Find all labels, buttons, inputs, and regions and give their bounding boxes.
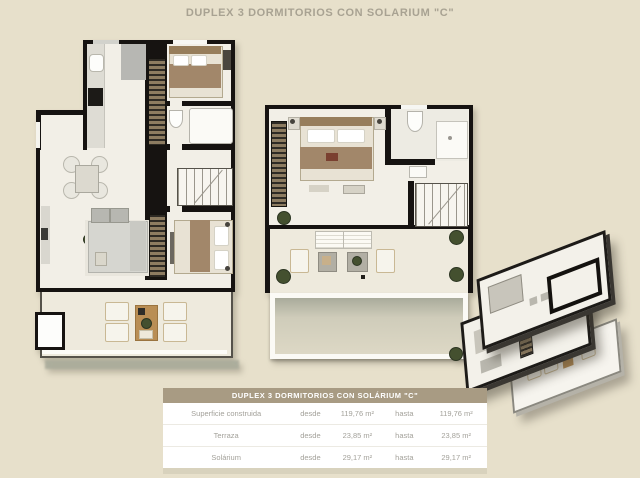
- floor-plan-lower-level: [33, 38, 235, 372]
- kitchen-cabinet: [121, 44, 146, 80]
- lamp-icon: [225, 222, 230, 227]
- pillow: [214, 226, 229, 246]
- table-shadow: [163, 468, 487, 474]
- sofa-cushion: [110, 208, 129, 223]
- isometric-stacked-view: [455, 242, 635, 402]
- lamp-icon: [225, 266, 230, 271]
- desde-label: desde: [289, 447, 331, 468]
- pillow: [337, 129, 365, 143]
- solarium-chair: [376, 249, 395, 273]
- plant-pot-icon: [141, 318, 152, 329]
- tv-icon: [41, 228, 48, 240]
- desde-label: desde: [289, 403, 331, 424]
- bench: [309, 185, 329, 192]
- coffee-table: [95, 252, 107, 266]
- wardrobe-icon: [271, 121, 287, 207]
- hasta-label: hasta: [383, 403, 425, 424]
- bed-blanket: [169, 64, 221, 88]
- sofa-chaise: [130, 221, 146, 271]
- plan-shadow: [45, 360, 239, 369]
- bed-blanket: [190, 220, 210, 272]
- terrace-chair: [163, 302, 187, 321]
- row-label: Terraza: [163, 425, 289, 446]
- plant-pot-icon: [277, 211, 291, 225]
- terrace-chair: [105, 302, 129, 321]
- window: [173, 40, 207, 44]
- iso-bed-block: [488, 274, 524, 314]
- sink-icon: [89, 54, 104, 72]
- sofa-cushion: [91, 208, 110, 223]
- iso-furniture: [480, 353, 502, 373]
- window: [401, 105, 427, 109]
- desk: [223, 50, 231, 70]
- hasta-label: hasta: [383, 447, 425, 468]
- hasta-label: hasta: [383, 425, 425, 446]
- desde-value: 29,17 m²: [331, 447, 383, 468]
- desde-value: 119,76 m²: [331, 403, 383, 424]
- door-opening: [170, 101, 182, 106]
- hasta-value: 23,85 m²: [425, 425, 487, 446]
- wardrobe-icon: [149, 214, 166, 278]
- iso-furniture: [529, 296, 537, 306]
- pillow: [173, 55, 189, 66]
- iso-solarium-frame: [547, 257, 603, 314]
- shower-icon: [436, 121, 468, 159]
- bed-headboard: [169, 46, 221, 54]
- sun-lounger: [315, 231, 344, 249]
- sun-lounger: [343, 231, 372, 249]
- pillow: [191, 55, 207, 66]
- interior-wall: [385, 159, 435, 165]
- hasta-value: 119,76 m²: [425, 403, 487, 424]
- table-item: [322, 256, 331, 265]
- table-item: [138, 308, 145, 315]
- toilet-icon: [169, 110, 183, 128]
- stairs-icon: [177, 168, 233, 206]
- table-body: Superficie construida desde 119,76 m² ha…: [163, 403, 487, 468]
- stairs-icon: [415, 183, 468, 227]
- terrace-chair: [163, 323, 187, 342]
- stove-icon: [88, 88, 103, 106]
- floor-plan-upper-level: [263, 103, 475, 365]
- table-row: Terraza desde 23,85 m² hasta 23,85 m²: [163, 425, 487, 447]
- lamp-icon: [290, 119, 295, 124]
- pillow: [307, 129, 335, 143]
- table-header: DUPLEX 3 DORMITORIOS CON SOLÁRIUM "C": [163, 388, 487, 403]
- terrace-railing: [270, 293, 468, 359]
- solarium-chair: [290, 249, 309, 273]
- table-row: Superficie construida desde 119,76 m² ha…: [163, 403, 487, 425]
- bathtub-icon: [189, 108, 233, 144]
- bench: [343, 185, 365, 194]
- dining-table-icon: [75, 165, 99, 193]
- window: [36, 122, 40, 148]
- bed-bench: [170, 232, 174, 264]
- bed-headboard: [300, 117, 372, 126]
- terrace-door: [35, 312, 65, 350]
- interior-wall: [385, 105, 391, 165]
- desde-value: 23,85 m²: [331, 425, 383, 446]
- lamp-icon: [377, 119, 382, 124]
- plant-pot-icon: [276, 269, 291, 284]
- door-opening: [170, 206, 182, 212]
- wardrobe-icon: [148, 58, 166, 146]
- stair-wall: [408, 181, 414, 225]
- area-table: DUPLEX 3 DORMITORIOS CON SOLÁRIUM "C" Su…: [163, 388, 487, 474]
- door-opening: [170, 144, 182, 150]
- terrace-railing: [42, 350, 227, 354]
- shower-drain: [448, 136, 452, 140]
- hasta-value: 29,17 m²: [425, 447, 487, 468]
- row-label: Superficie construida: [163, 403, 289, 424]
- page-title: DUPLEX 3 DORMITORIOS CON SOLARIUM "C": [0, 7, 640, 19]
- tray: [139, 330, 153, 339]
- table-row: Solárium desde 29,17 m² hasta 29,17 m²: [163, 447, 487, 468]
- desde-label: desde: [289, 425, 331, 446]
- plant-pot-icon: [352, 256, 362, 266]
- row-label: Solárium: [163, 447, 289, 468]
- sink-icon: [409, 166, 427, 178]
- toilet-icon: [407, 111, 423, 132]
- bed-throw: [326, 153, 338, 161]
- terrace-chair: [105, 323, 129, 342]
- floor-drain: [361, 275, 365, 279]
